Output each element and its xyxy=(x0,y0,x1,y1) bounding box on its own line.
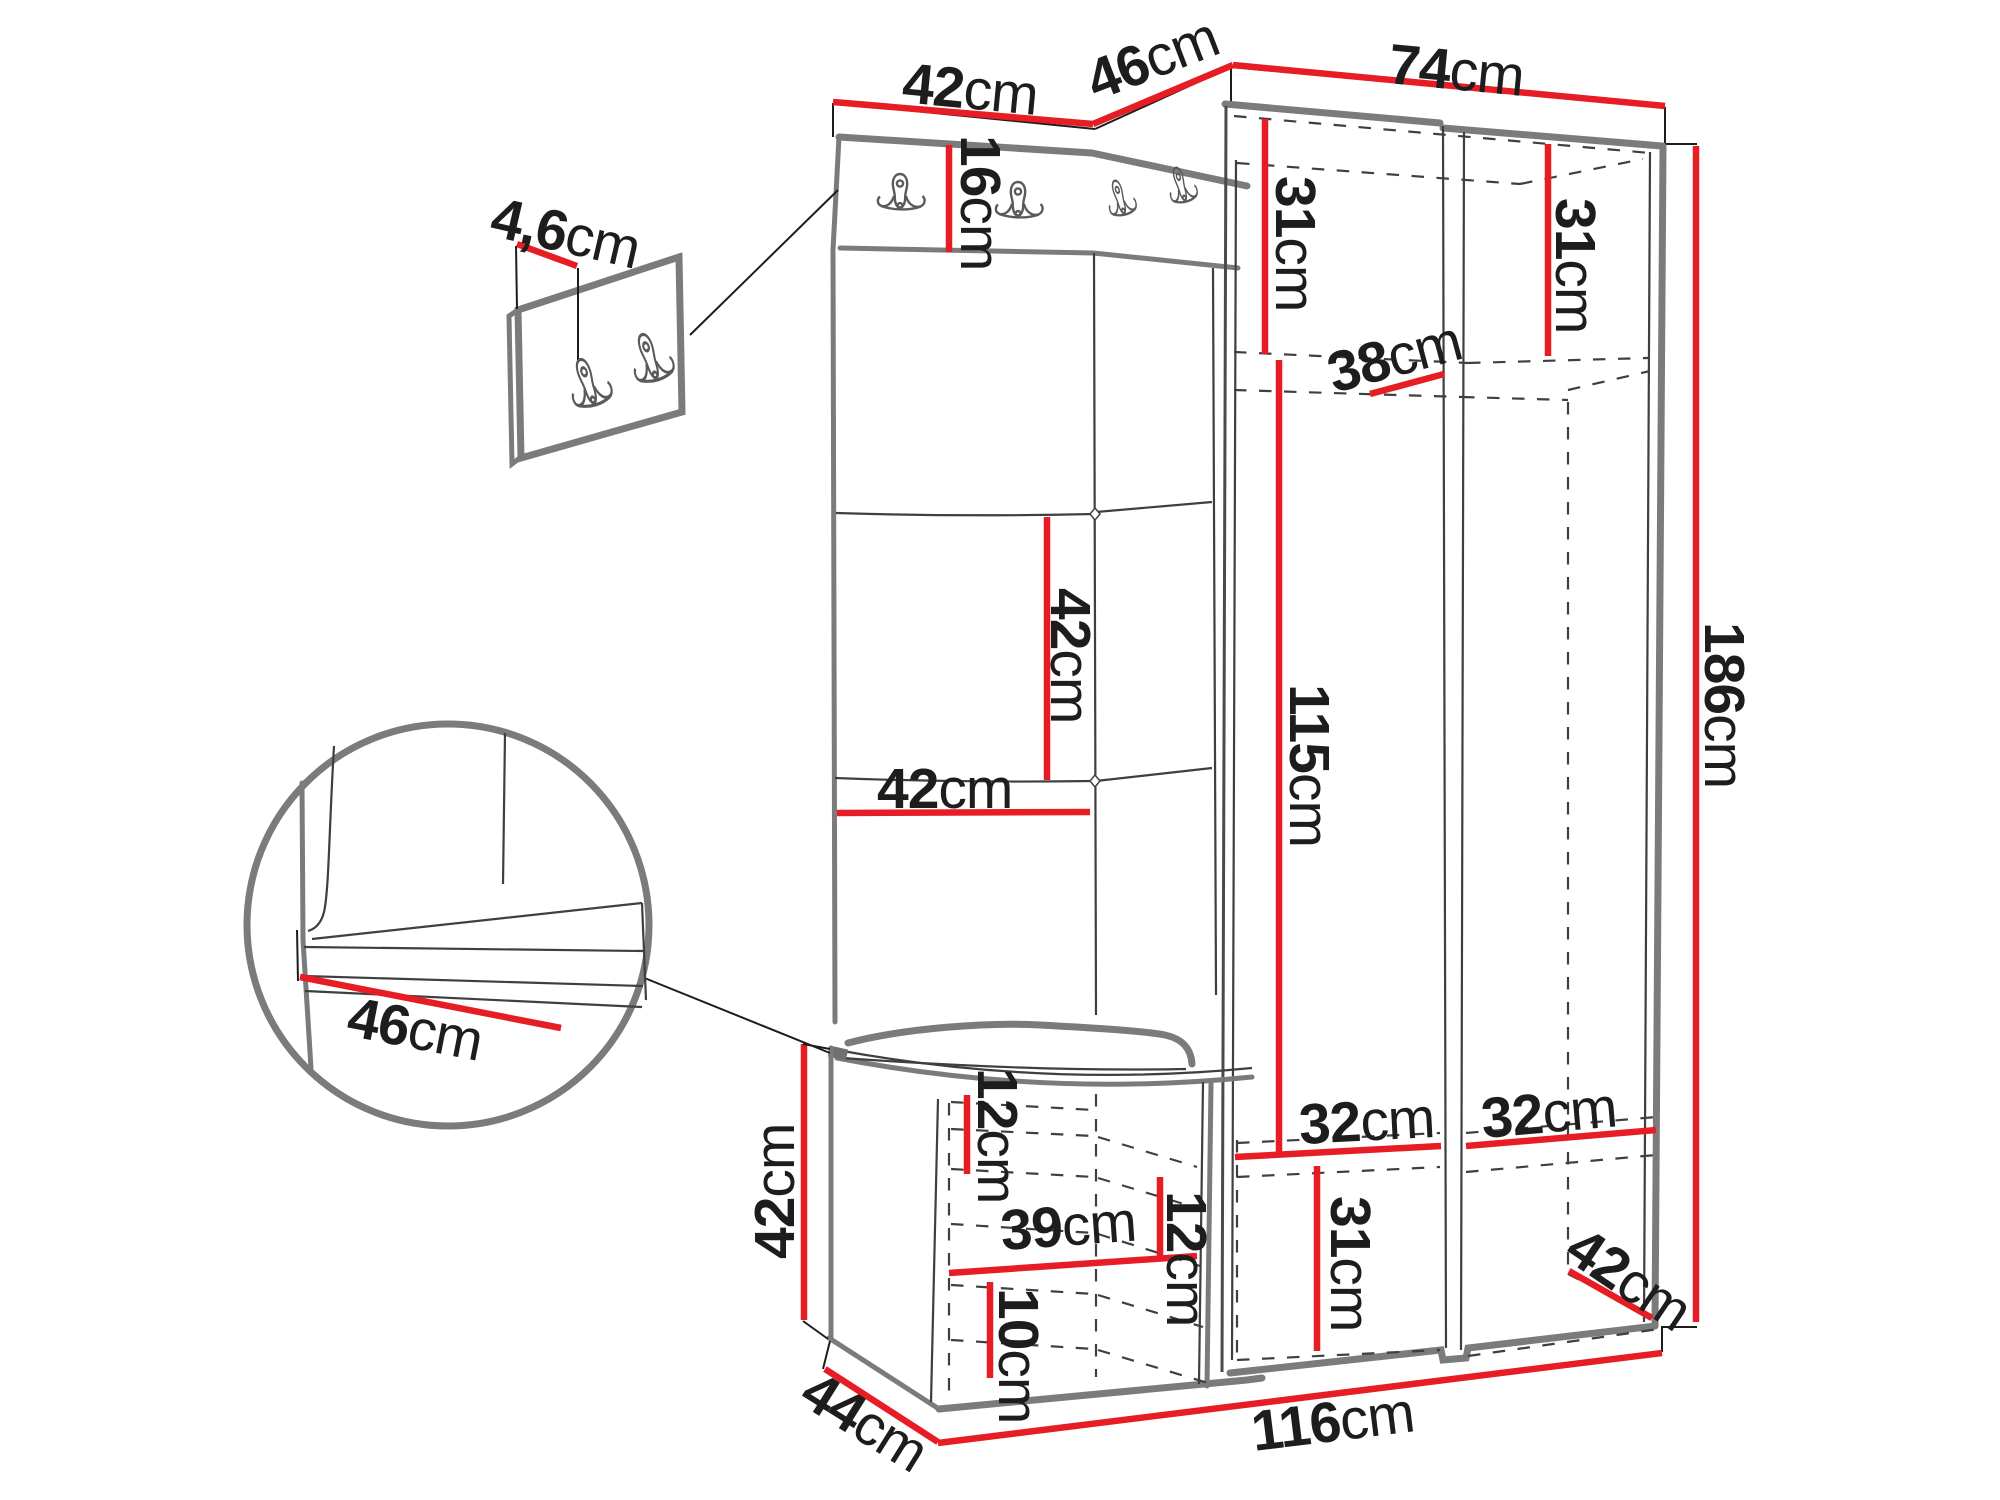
svg-text:39cm: 39cm xyxy=(998,1190,1138,1263)
svg-text:42cm: 42cm xyxy=(743,1124,807,1259)
svg-text:10cm: 10cm xyxy=(986,1288,1050,1423)
svg-text:32cm: 32cm xyxy=(1297,1086,1436,1157)
svg-text:42cm: 42cm xyxy=(900,51,1041,128)
svg-text:74cm: 74cm xyxy=(1386,32,1527,109)
svg-text:31cm: 31cm xyxy=(1318,1196,1382,1331)
svg-text:42cm: 42cm xyxy=(877,757,1012,821)
svg-text:12cm: 12cm xyxy=(965,1068,1029,1203)
svg-text:12cm: 12cm xyxy=(1154,1191,1218,1326)
svg-text:42cm: 42cm xyxy=(1038,588,1102,723)
svg-text:31cm: 31cm xyxy=(1543,198,1607,333)
svg-text:115cm: 115cm xyxy=(1277,684,1341,847)
svg-text:31cm: 31cm xyxy=(1263,176,1327,311)
svg-text:186cm: 186cm xyxy=(1692,622,1756,788)
svg-text:16cm: 16cm xyxy=(948,135,1012,270)
svg-text:32cm: 32cm xyxy=(1479,1075,1619,1151)
